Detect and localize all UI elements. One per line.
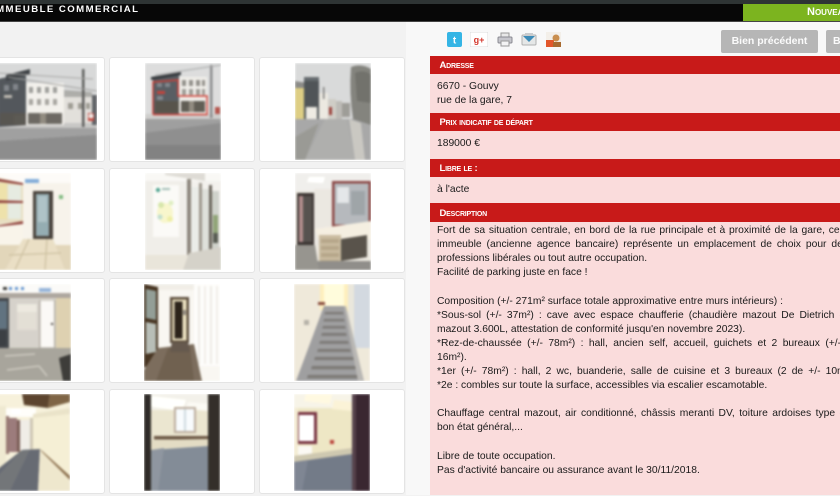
svg-text:g+: g+ [474, 35, 485, 45]
